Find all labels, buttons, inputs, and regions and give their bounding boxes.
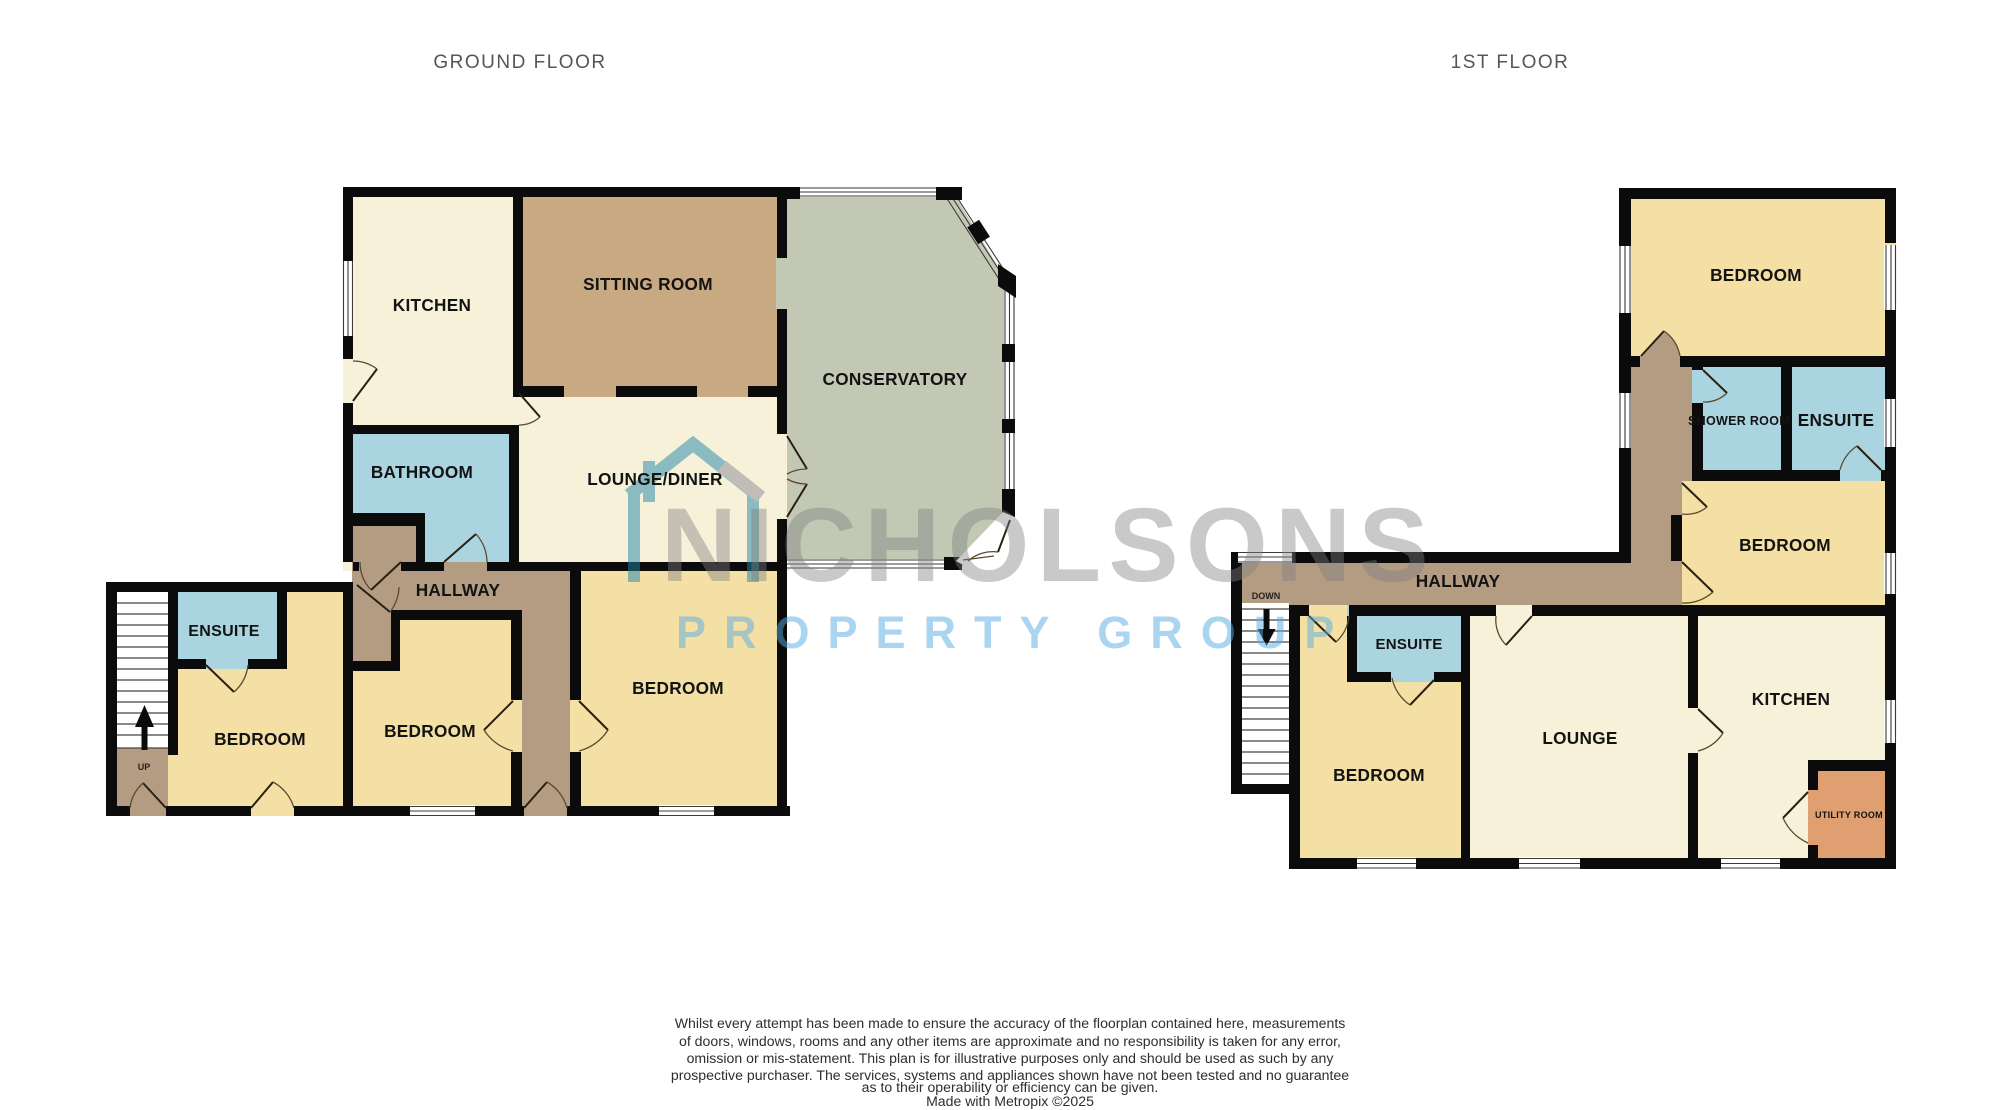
svg-text:GROUND FLOOR: GROUND FLOOR: [433, 52, 606, 73]
svg-text:BEDROOM: BEDROOM: [1739, 535, 1831, 555]
svg-text:LOUNGE/DINER: LOUNGE/DINER: [587, 469, 723, 489]
svg-text:NICHOLSONS: NICHOLSONS: [661, 487, 1436, 604]
svg-text:Made with Metropix ©2025: Made with Metropix ©2025: [926, 1093, 1094, 1109]
svg-text:BEDROOM: BEDROOM: [1710, 265, 1802, 285]
svg-text:ENSUITE: ENSUITE: [1798, 410, 1875, 430]
svg-text:LOUNGE: LOUNGE: [1542, 728, 1617, 748]
svg-text:UP: UP: [138, 762, 151, 772]
svg-text:omission or mis-statement. Thi: omission or mis-statement. This plan is …: [687, 1050, 1335, 1066]
svg-text:HALLWAY: HALLWAY: [1416, 571, 1501, 591]
svg-text:ENSUITE: ENSUITE: [188, 623, 259, 640]
svg-text:of doors, windows, rooms and a: of doors, windows, rooms and any other i…: [679, 1033, 1341, 1049]
svg-text:PROPERTY GROUP: PROPERTY GROUP: [676, 607, 1352, 658]
svg-text:KITCHEN: KITCHEN: [393, 295, 472, 315]
svg-text:BATHROOM: BATHROOM: [371, 462, 473, 482]
svg-text:UTILITY ROOM: UTILITY ROOM: [1815, 810, 1883, 820]
svg-text:KITCHEN: KITCHEN: [1752, 689, 1831, 709]
svg-text:BEDROOM: BEDROOM: [214, 729, 306, 749]
svg-text:BEDROOM: BEDROOM: [1333, 765, 1425, 785]
svg-text:1ST FLOOR: 1ST FLOOR: [1451, 52, 1570, 73]
svg-text:Whilst every attempt has been: Whilst every attempt has been made to en…: [675, 1015, 1346, 1031]
svg-text:BEDROOM: BEDROOM: [632, 678, 724, 698]
svg-text:CONSERVATORY: CONSERVATORY: [823, 369, 968, 389]
svg-text:ENSUITE: ENSUITE: [1375, 636, 1442, 653]
svg-text:SHOWER ROOM: SHOWER ROOM: [1688, 414, 1790, 428]
svg-text:SITTING ROOM: SITTING ROOM: [583, 274, 713, 294]
svg-text:BEDROOM: BEDROOM: [384, 721, 476, 741]
svg-text:HALLWAY: HALLWAY: [416, 580, 501, 600]
